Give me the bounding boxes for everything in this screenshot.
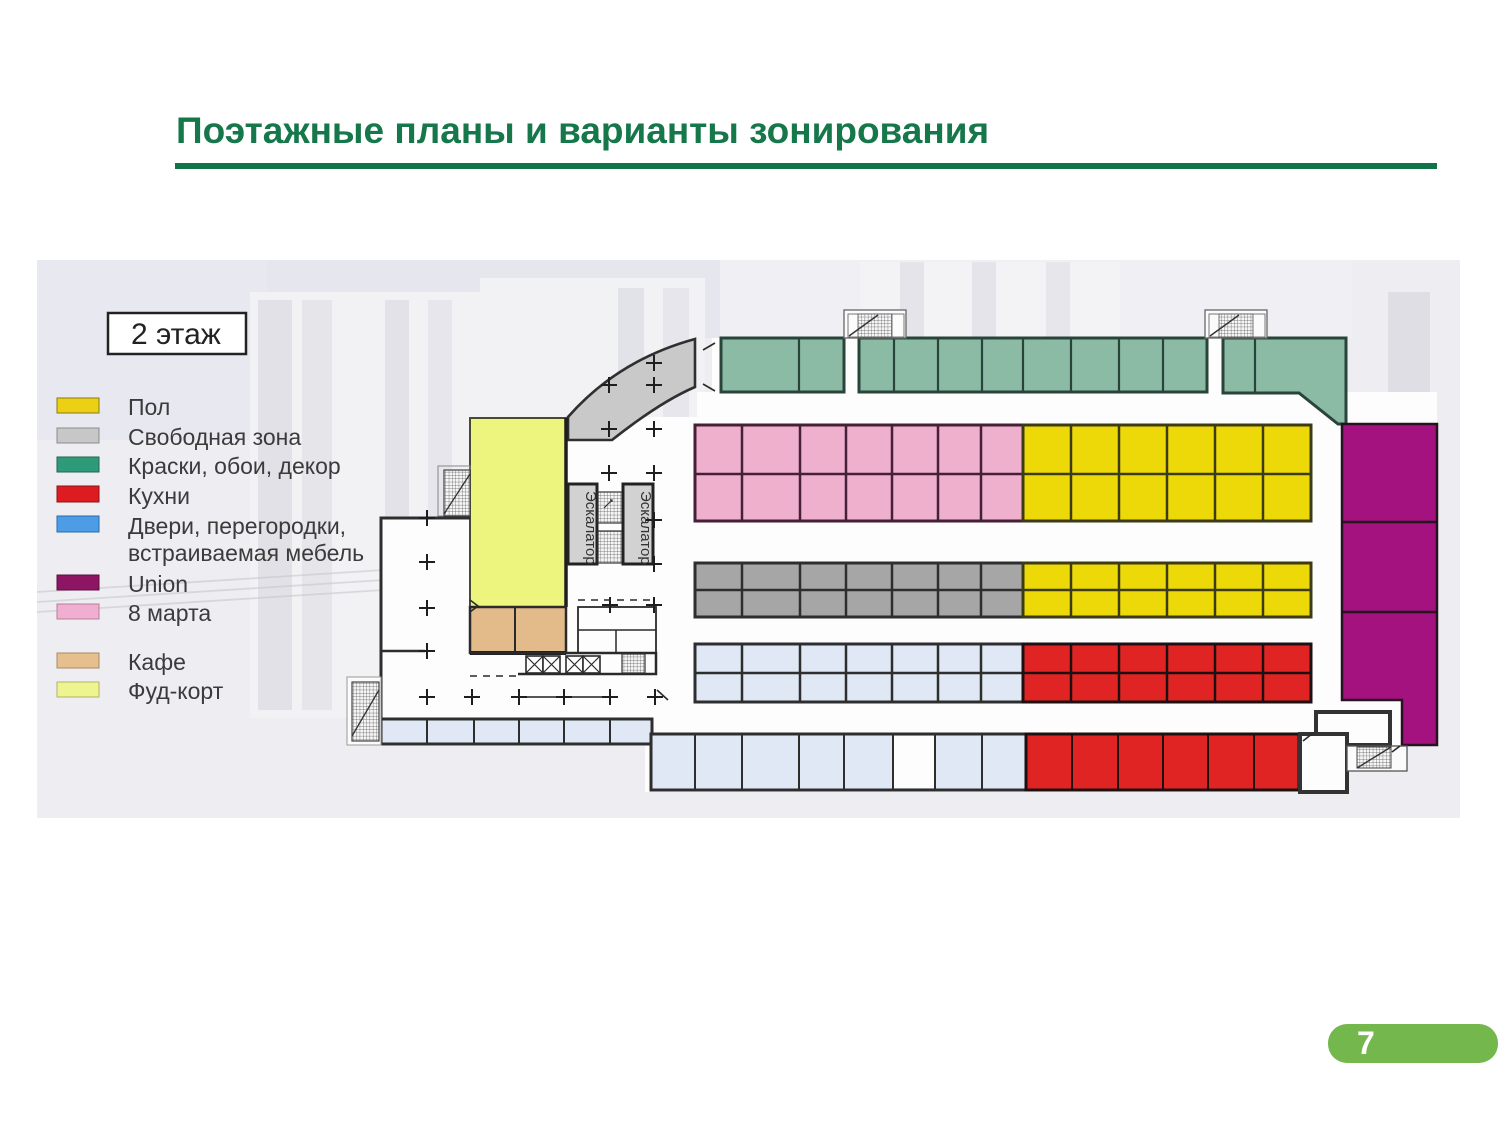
svg-text:8 марта: 8 марта bbox=[128, 600, 211, 626]
svg-text:Union: Union bbox=[128, 571, 188, 597]
svg-text:Фуд-корт: Фуд-корт bbox=[128, 678, 224, 704]
svg-text:встраиваемая мебель: встраиваемая мебель bbox=[128, 540, 364, 566]
svg-text:Свободная зона: Свободная зона bbox=[128, 424, 301, 450]
svg-text:Двери, перегородки,: Двери, перегородки, bbox=[128, 513, 346, 539]
svg-text:2 этаж: 2 этаж bbox=[131, 318, 221, 351]
svg-text:Краски, обои, декор: Краски, обои, декор bbox=[128, 453, 341, 479]
svg-text:Поэтажные планы и варианты зон: Поэтажные планы и варианты зонирования bbox=[176, 110, 989, 151]
svg-text:Кухни: Кухни bbox=[128, 483, 190, 509]
svg-text:7: 7 bbox=[1357, 1025, 1375, 1061]
svg-text:Эскалатор: Эскалатор bbox=[582, 491, 599, 565]
svg-text:Кафе: Кафе bbox=[128, 649, 186, 675]
svg-text:Пол: Пол bbox=[128, 394, 170, 420]
svg-text:Эскалатор: Эскалатор bbox=[637, 491, 654, 565]
